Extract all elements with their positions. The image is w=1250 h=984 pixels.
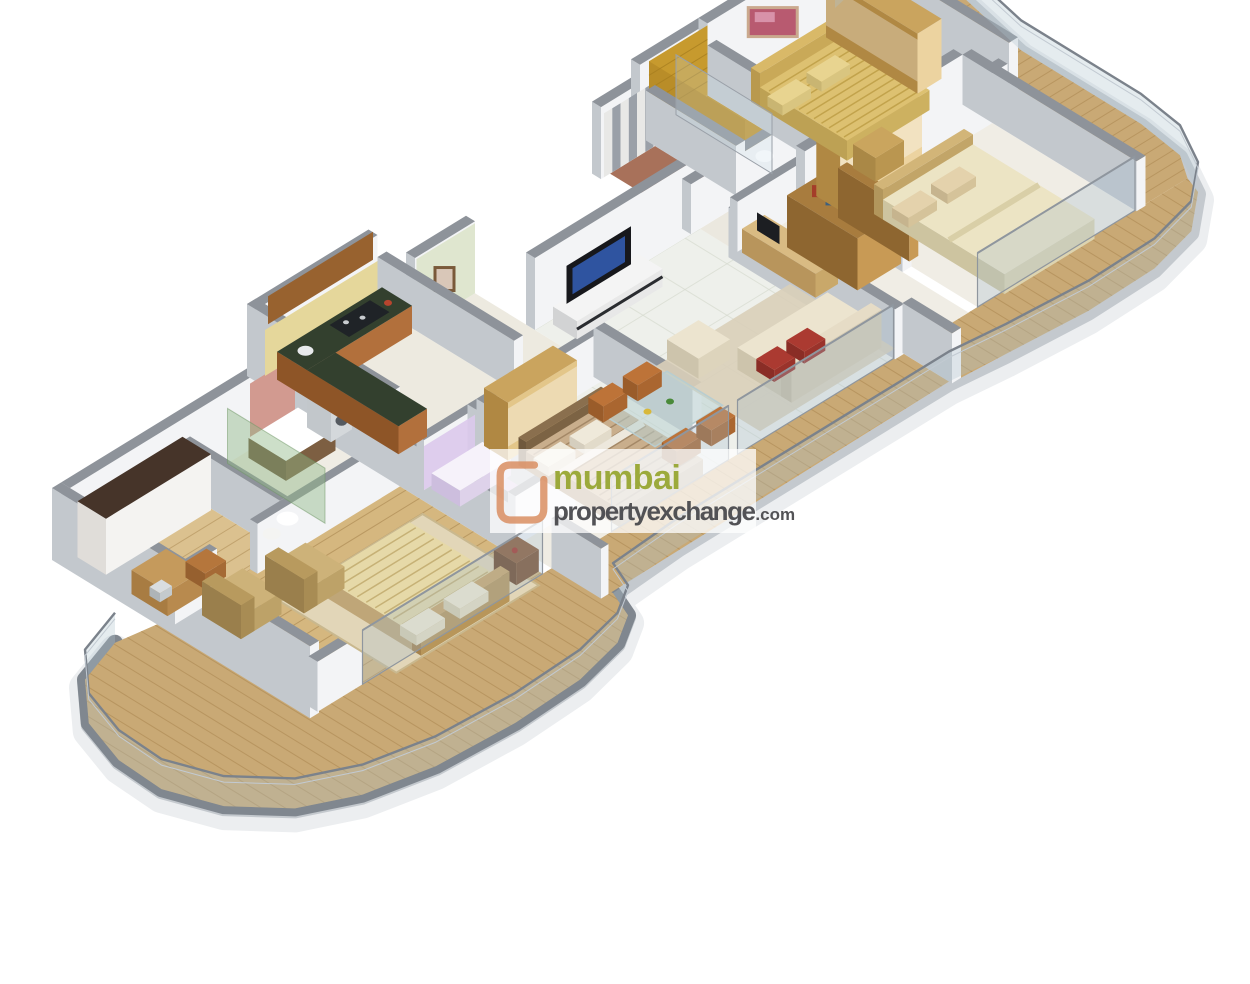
domain-suffix: .com	[755, 505, 795, 524]
watermark-panel: mumbai propertyexchange.com	[490, 449, 756, 533]
brand-name-mumbai: mumbai	[553, 461, 795, 495]
brand-line2-text: propertyexchange	[553, 496, 754, 526]
watermark-text: mumbai propertyexchange.com	[553, 459, 795, 524]
brand-name-propertyexchange: propertyexchange.com	[553, 498, 795, 524]
property-exchange-logo-icon	[495, 457, 549, 527]
abstract-painting	[747, 6, 799, 38]
floor-plan-page: mumbai propertyexchange.com	[0, 0, 1250, 984]
